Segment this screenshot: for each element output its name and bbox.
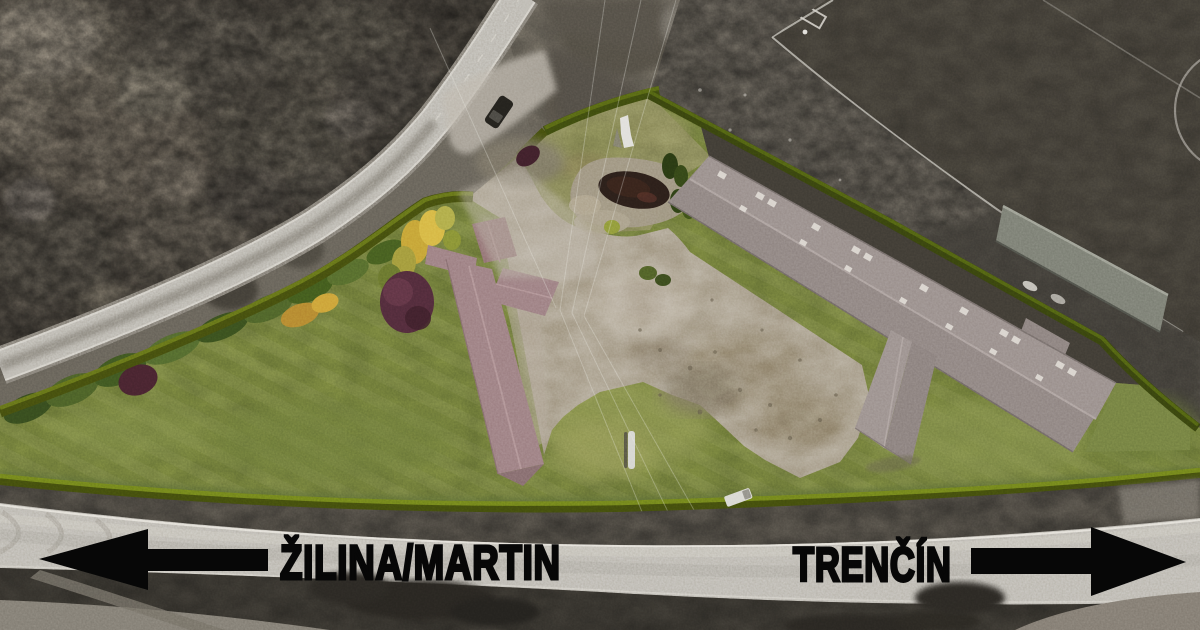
svg-text:ŽILINA/MARTIN: ŽILINA/MARTIN bbox=[280, 535, 561, 590]
svg-text:TRENČÍN: TRENČÍN bbox=[793, 536, 952, 591]
